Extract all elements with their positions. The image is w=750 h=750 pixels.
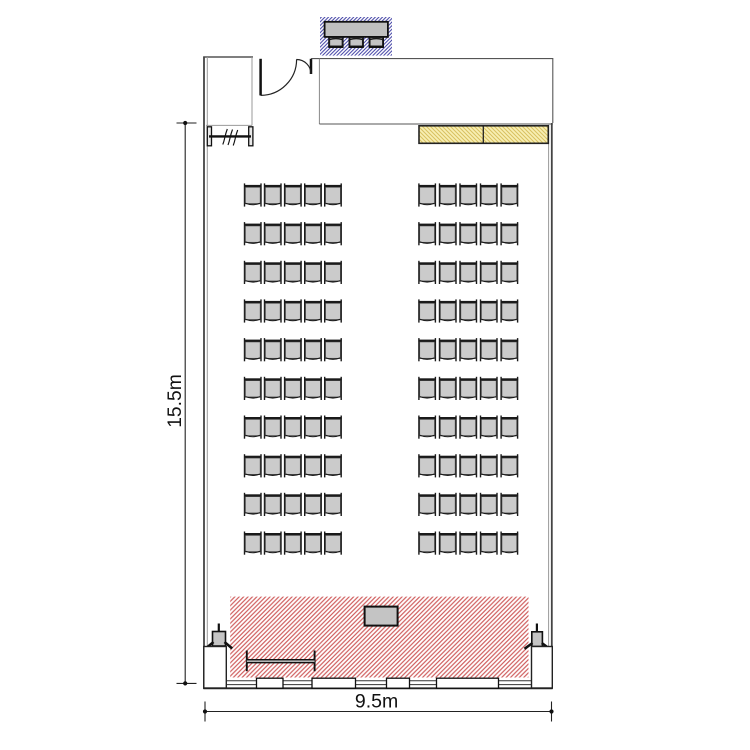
svg-text:9.5m: 9.5m [355, 690, 398, 712]
svg-text:15.5m: 15.5m [165, 374, 186, 428]
